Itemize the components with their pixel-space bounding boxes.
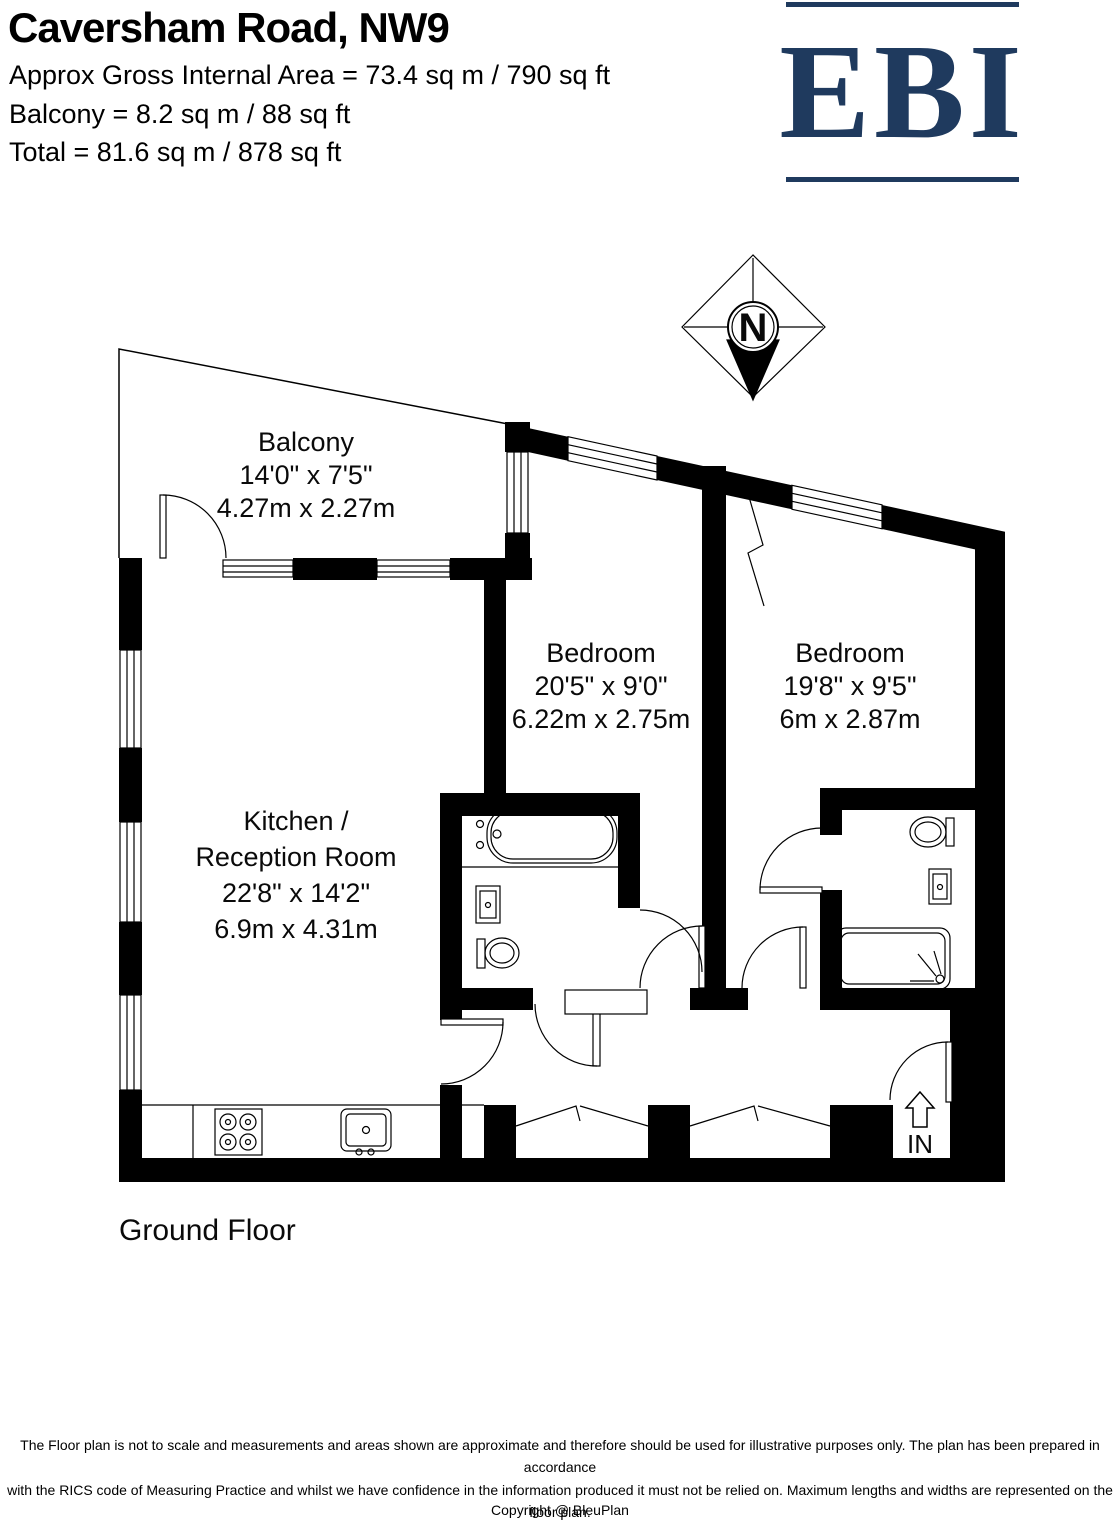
- kitchen-imperial: 22'8" x 14'2": [222, 878, 370, 908]
- kitchen-counter: [142, 1105, 484, 1158]
- shower: [836, 928, 950, 989]
- bedroom2-metric: 6m x 2.87m: [779, 704, 920, 734]
- floorplan-page: Caversham Road, NW9 Approx Gross Interna…: [0, 0, 1120, 1521]
- compass-north-label: N: [739, 306, 768, 350]
- bedroom1-name: Bedroom: [546, 638, 656, 668]
- floor-label: Ground Floor: [119, 1214, 296, 1247]
- bathroom2-toilet: [910, 817, 954, 847]
- copyright: Copyright @ BleuPlan: [0, 1502, 1120, 1518]
- bathroom1-toilet: [477, 938, 519, 968]
- break-line: [747, 490, 764, 606]
- entry-arrow-icon: [906, 1092, 934, 1127]
- balcony-imperial: 14'0" x 7'5": [239, 460, 372, 490]
- stove: [215, 1109, 262, 1155]
- floor-plan-svg: N: [0, 0, 1120, 1521]
- bathroom2-sink: [929, 869, 951, 904]
- bedroom2-name: Bedroom: [795, 638, 905, 668]
- kitchen-sink: [341, 1109, 391, 1155]
- kitchen-name2: Reception Room: [195, 842, 396, 872]
- kitchen-metric: 6.9m x 4.31m: [214, 914, 378, 944]
- bedroom1-metric: 6.22m x 2.75m: [512, 704, 691, 734]
- bathroom1-sink: [476, 886, 500, 923]
- walls: [119, 422, 1005, 1182]
- balcony-metric: 4.27m x 2.27m: [217, 493, 396, 523]
- bedroom2-imperial: 19'8" x 9'5": [783, 671, 916, 701]
- bedroom1-imperial: 20'5" x 9'0": [534, 671, 667, 701]
- disclaimer-line-1: The Floor plan is not to scale and measu…: [0, 1434, 1120, 1479]
- entrance-label: IN: [907, 1129, 933, 1159]
- kitchen-name: Kitchen /: [243, 806, 349, 836]
- balcony-name: Balcony: [258, 427, 355, 457]
